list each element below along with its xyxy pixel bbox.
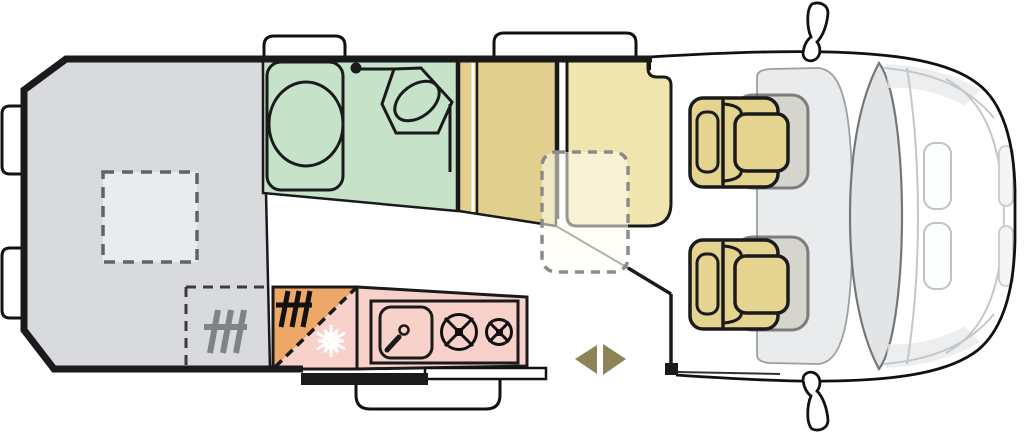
partition-foot (665, 363, 678, 375)
floorplan-canvas (0, 0, 1024, 433)
seat-cushion (735, 114, 788, 171)
bumper-inner-line (946, 79, 1004, 353)
partition-thick-line (628, 268, 671, 294)
door-track (425, 368, 546, 379)
swivel-seat-icon (690, 95, 808, 188)
swivel-seat-icon (690, 237, 808, 330)
skylight-icon (103, 172, 197, 262)
kitchen (273, 287, 527, 369)
headlight-icon (924, 223, 951, 289)
door-pivot-icon (351, 63, 362, 74)
bathroom (263, 60, 457, 211)
floorplan-svg (0, 0, 1024, 433)
arrow-left-icon (575, 345, 597, 374)
toilet-icon (269, 82, 343, 166)
arrow-right-icon (603, 344, 626, 375)
sliding-door-icon (301, 373, 428, 385)
cab-floor-line (677, 372, 780, 374)
table-outline-icon (542, 152, 628, 272)
seat-swivel-arrows (575, 344, 626, 375)
window-icon (494, 33, 636, 57)
seat-cushion (735, 256, 788, 313)
headlight-icon (924, 143, 951, 209)
windshield (850, 63, 902, 369)
hood-crease (907, 68, 918, 364)
